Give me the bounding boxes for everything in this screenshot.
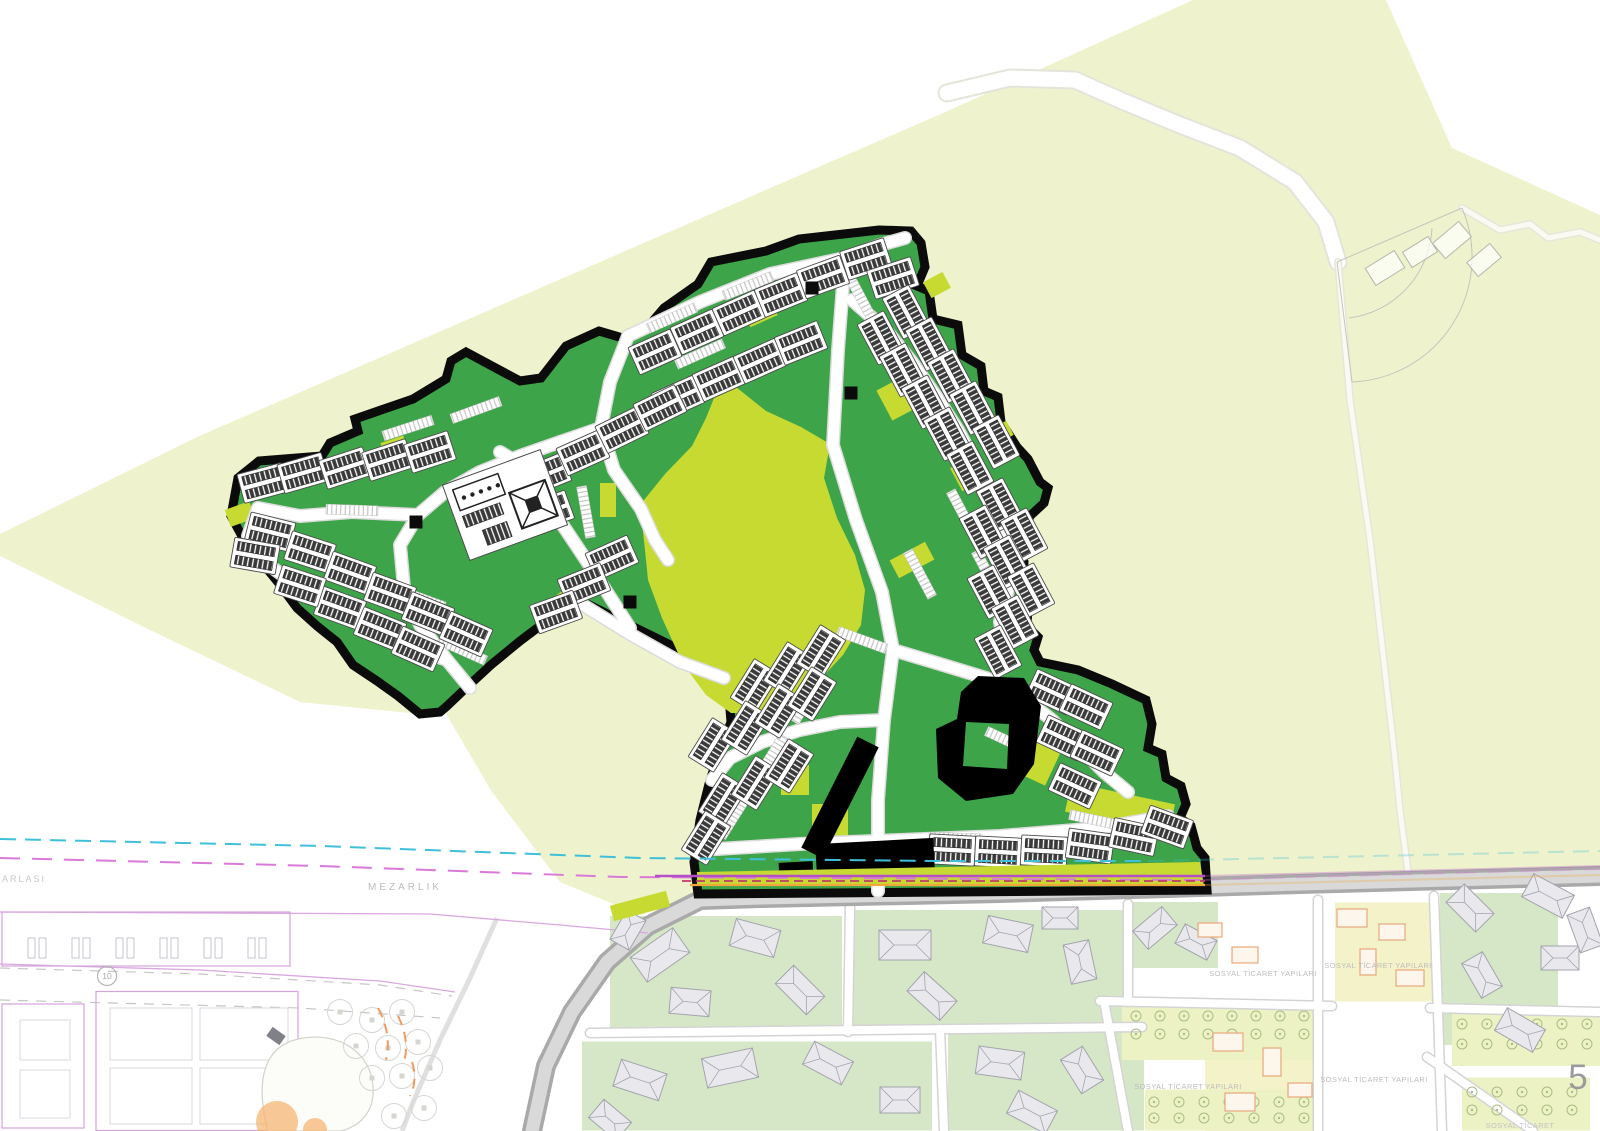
plan-footprint bbox=[28, 938, 266, 958]
site-plan-map: 10MEZARLIKARLASISOSYAL TİCARET YAPILARIS… bbox=[0, 0, 1600, 1131]
map-label: SOSYAL TİCARET bbox=[1486, 1121, 1555, 1130]
building-footprint bbox=[1020, 835, 1068, 867]
parking-strip bbox=[326, 504, 378, 516]
building-footprint bbox=[1065, 828, 1115, 864]
map-label: SOSYAL TİCARET YAPILARI bbox=[1320, 1075, 1427, 1084]
street-centerline bbox=[0, 968, 452, 1018]
existing-building bbox=[1042, 907, 1078, 929]
existing-building bbox=[975, 1046, 1024, 1080]
existing-building bbox=[879, 930, 931, 960]
park-structure bbox=[266, 1027, 285, 1045]
generated-map-layers: 10MEZARLIKARLASISOSYAL TİCARET YAPILARIS… bbox=[0, 0, 1600, 1131]
existing-building bbox=[1541, 946, 1579, 970]
masterplan-sheet: 10MEZARLIKARLASISOSYAL TİCARET YAPILARIS… bbox=[0, 0, 1600, 1131]
map-label: SOSYAL TİCARET YAPILARI bbox=[1209, 969, 1316, 978]
existing-building bbox=[669, 987, 711, 1016]
map-label: SOSYAL TİCARET YAPILARI bbox=[1324, 961, 1431, 970]
existing-building bbox=[880, 1087, 920, 1113]
building-footprint bbox=[974, 836, 1022, 868]
map-label: SOSYAL TİCARET YAPILARI bbox=[1134, 1082, 1241, 1091]
map-label: ARLASI bbox=[2, 874, 46, 884]
map-label: MEZARLIK bbox=[368, 882, 442, 893]
sheet-number: 5 bbox=[1556, 1058, 1600, 1098]
road-node-marker: 10 bbox=[98, 967, 117, 986]
old-road bbox=[402, 918, 497, 1131]
building-plan bbox=[20, 1008, 288, 1124]
svg-text:10: 10 bbox=[102, 971, 112, 981]
utility-purple-faint bbox=[0, 912, 648, 992]
